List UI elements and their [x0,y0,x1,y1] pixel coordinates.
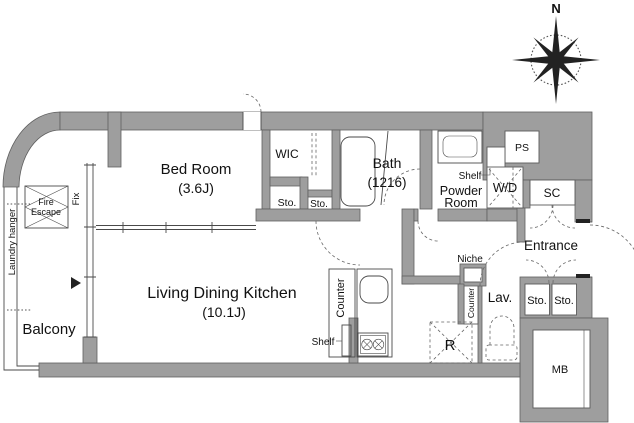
shelf-kitchen: Shelf [312,337,335,348]
balcony-access-marker [71,277,81,289]
counter-lav-label: Counter [466,288,476,318]
powder-door-swing [418,221,438,241]
lav-door-swing [480,242,524,286]
sto-wic-right: Sto. [310,199,328,210]
niche-label: Niche [457,254,483,265]
top-door-gap [243,112,261,130]
bath-label: Bath [373,155,402,171]
entrance-jamb-top [576,219,590,223]
toilet [486,316,517,360]
curved-corner-wall [3,112,60,187]
powder-line2: Room [444,196,477,210]
fridge-label: R [445,337,456,354]
entrance-jamb-bottom [576,274,590,278]
ldk-door-swing [316,221,360,265]
sc-door-right [552,205,575,228]
sto-entrance-right: Sto. [554,295,574,307]
ldk-label: Living Dining Kitchen [147,285,296,302]
fire-escape-line1: Fire [38,197,54,207]
wic-label: WIC [275,147,299,161]
counter-kitchen-label: Counter [335,278,347,317]
ldk-size: (10.1J) [202,304,246,320]
fire-escape-line2: Escape [31,207,61,217]
balcony-label: Balcony [22,321,76,338]
sc-label: SC [544,186,561,200]
niche-recess [464,268,482,282]
mb-label: MB [552,364,569,376]
balcony-window [84,163,96,337]
bedroom-label: Bed Room [161,161,232,178]
bath-size: (1216) [367,175,406,190]
sto-wic-left: Sto. [278,197,297,209]
entrance-door-swing [590,225,634,277]
top-wall [60,112,483,130]
shelf-powder: Shelf [459,171,482,182]
kitchen-appliance-strip [357,269,392,357]
ps-label: PS [515,142,529,154]
wic-folding-door [312,133,316,177]
compass-north-label: N [551,1,560,16]
wd-label: W/D [493,181,517,195]
laundry-hanger-label: Laundry hanger [7,209,18,276]
sc-door-left [530,205,553,228]
floor-plan-svg: N Bed Room (3.6J) Living Dining Kitchen … [0,0,634,423]
lav-label: Lav. [488,290,513,305]
fix-label: Fix [71,192,82,205]
kitchen-sink [360,276,388,303]
bedroom-size: (3.6J) [178,180,214,196]
bathtub [341,137,375,206]
bedroom-ldk-partition [96,222,256,233]
entrance-label: Entrance [524,238,578,253]
top-door-swing [243,94,261,112]
compass-rose: N [512,1,600,104]
sto-entrance-left: Sto. [527,295,547,307]
floor-plan: N Bed Room (3.6J) Living Dining Kitchen … [0,0,634,423]
